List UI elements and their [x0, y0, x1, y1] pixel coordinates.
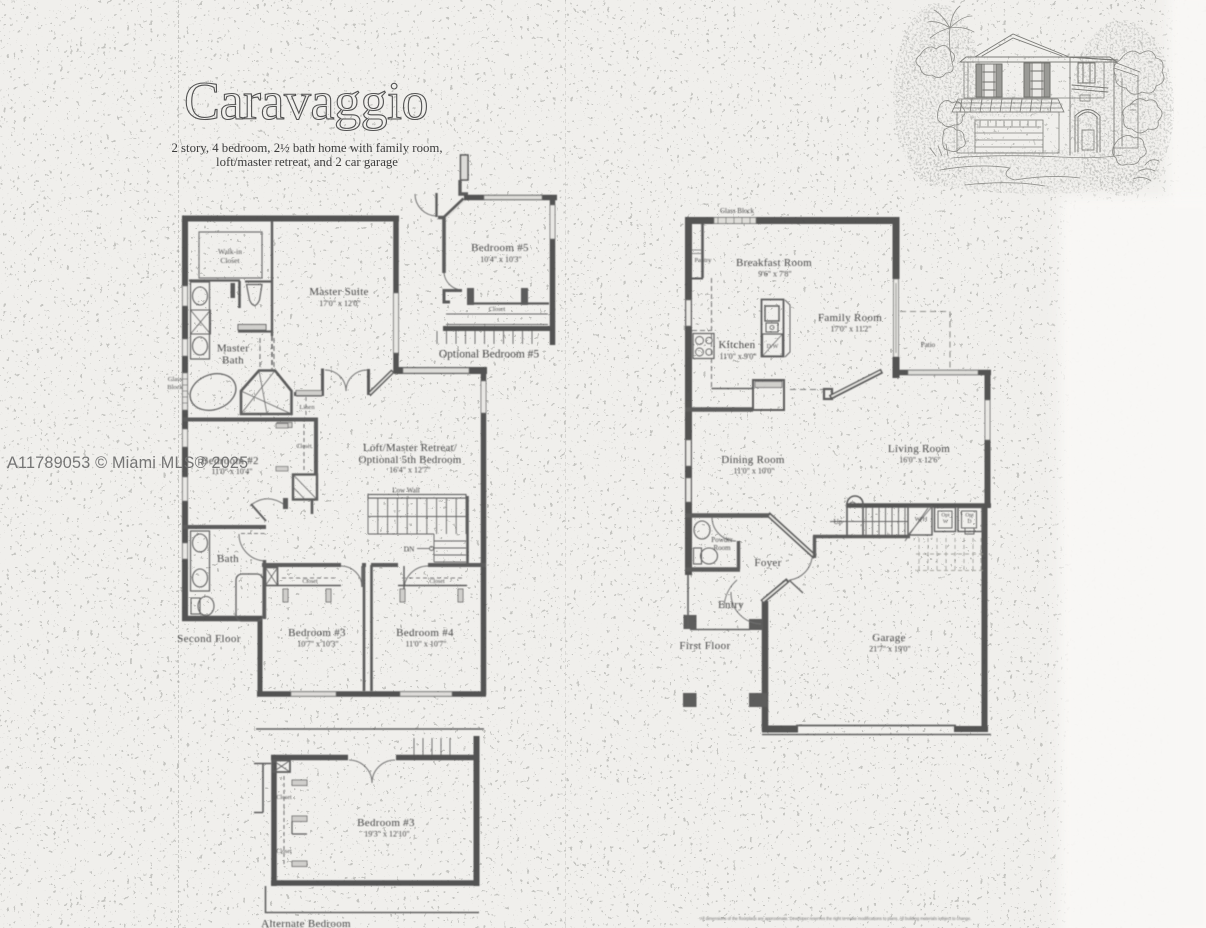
- svg-text:Low Wall: Low Wall: [392, 487, 420, 495]
- svg-text:All dimensions of the floorpla: All dimensions of the floorplans are app…: [700, 916, 971, 921]
- svg-text:Block: Block: [167, 384, 183, 391]
- svg-text:10'7" x 10'3": 10'7" x 10'3": [297, 640, 338, 649]
- svg-text:Second Floor: Second Floor: [177, 633, 241, 645]
- svg-text:Optional 5th Bedroom: Optional 5th Bedroom: [359, 454, 462, 466]
- svg-text:Bath: Bath: [222, 355, 244, 367]
- svg-text:First Floor: First Floor: [679, 640, 730, 652]
- svg-text:loft/master retreat, and 2 car: loft/master retreat, and 2 car garage: [216, 155, 398, 169]
- svg-text:17'0" x 12'0": 17'0" x 12'0": [319, 299, 360, 308]
- svg-text:DN: DN: [404, 545, 415, 554]
- svg-text:11'0" x 10'7": 11'0" x 10'7": [405, 640, 446, 649]
- svg-text:Powder: Powder: [711, 536, 733, 544]
- svg-text:Pantry: Pantry: [695, 257, 713, 264]
- svg-text:Alternate Bedroom: Alternate Bedroom: [261, 918, 351, 928]
- svg-text:16'0" x 12'6": 16'0" x 12'6": [899, 456, 940, 465]
- svg-text:Closet: Closet: [220, 256, 240, 265]
- svg-text:Closet: Closet: [276, 849, 292, 855]
- svg-text:Opt: Opt: [965, 513, 974, 519]
- svg-text:21'7" x 19'0": 21'7" x 19'0": [869, 645, 910, 654]
- svg-text:Entry: Entry: [718, 599, 744, 611]
- svg-text:9'6" x 7'8": 9'6" x 7'8": [758, 270, 791, 279]
- svg-text:Garage: Garage: [872, 632, 906, 644]
- svg-text:Bedroom #3: Bedroom #3: [357, 817, 415, 829]
- svg-text:Room: Room: [713, 544, 731, 552]
- svg-text:19'3" x 12'10": 19'3" x 12'10": [364, 830, 409, 839]
- svg-text:Living Room: Living Room: [888, 443, 950, 455]
- svg-text:Bath: Bath: [217, 553, 239, 565]
- svg-text:Glass: Glass: [168, 376, 183, 383]
- svg-text:Glass Block: Glass Block: [720, 207, 755, 215]
- svg-text:17'0" x 11'2": 17'0" x 11'2": [830, 325, 871, 334]
- svg-text:Foyer: Foyer: [754, 557, 781, 569]
- svg-text:Bedroom #4: Bedroom #4: [396, 627, 454, 639]
- svg-text:Dining Room: Dining Room: [721, 454, 785, 466]
- svg-text:10'4" x 10'3": 10'4" x 10'3": [480, 255, 521, 264]
- svg-text:Closet: Closet: [276, 795, 292, 801]
- svg-text:Bedroom #5: Bedroom #5: [471, 242, 529, 254]
- svg-text:Linen: Linen: [299, 404, 315, 411]
- svg-text:W: W: [943, 519, 949, 525]
- svg-text:Master: Master: [217, 343, 249, 355]
- svg-text:Optional Bedroom #5: Optional Bedroom #5: [439, 349, 540, 361]
- svg-text:Patio: Patio: [921, 341, 936, 349]
- svg-text:Closet: Closet: [296, 444, 312, 450]
- svg-text:Breakfast Room: Breakfast Room: [736, 257, 812, 269]
- svg-text:Bedroom #3: Bedroom #3: [288, 627, 346, 639]
- svg-text:11'0" x 9'0": 11'0" x 9'0": [719, 352, 756, 361]
- svg-text:Closet: Closet: [429, 579, 445, 585]
- svg-text:Family Room: Family Room: [818, 312, 882, 324]
- svg-text:Walk-in: Walk-in: [218, 247, 242, 256]
- svg-text:11'0" x 10'0": 11'0" x 10'0": [733, 467, 774, 476]
- svg-text:Master Suite: Master Suite: [309, 286, 369, 298]
- svg-text:Loft/Master Retreat/: Loft/Master Retreat/: [363, 442, 458, 454]
- svg-text:Closet: Closet: [302, 579, 318, 585]
- svg-text:Closet: Closet: [489, 306, 506, 313]
- svg-text:2 story, 4 bedroom, 2½ bath ho: 2 story, 4 bedroom, 2½ bath home with fa…: [171, 141, 442, 155]
- svg-text:A11789053 © Miami MLS® 2025: A11789053 © Miami MLS® 2025: [7, 454, 248, 472]
- svg-text:Opt: Opt: [941, 513, 950, 519]
- svg-text:Kitchen: Kitchen: [719, 339, 756, 351]
- svg-text:D: D: [968, 519, 972, 525]
- svg-text:Caravaggio: Caravaggio: [184, 71, 428, 131]
- svg-text:16'4" x 12'7": 16'4" x 12'7": [389, 466, 430, 475]
